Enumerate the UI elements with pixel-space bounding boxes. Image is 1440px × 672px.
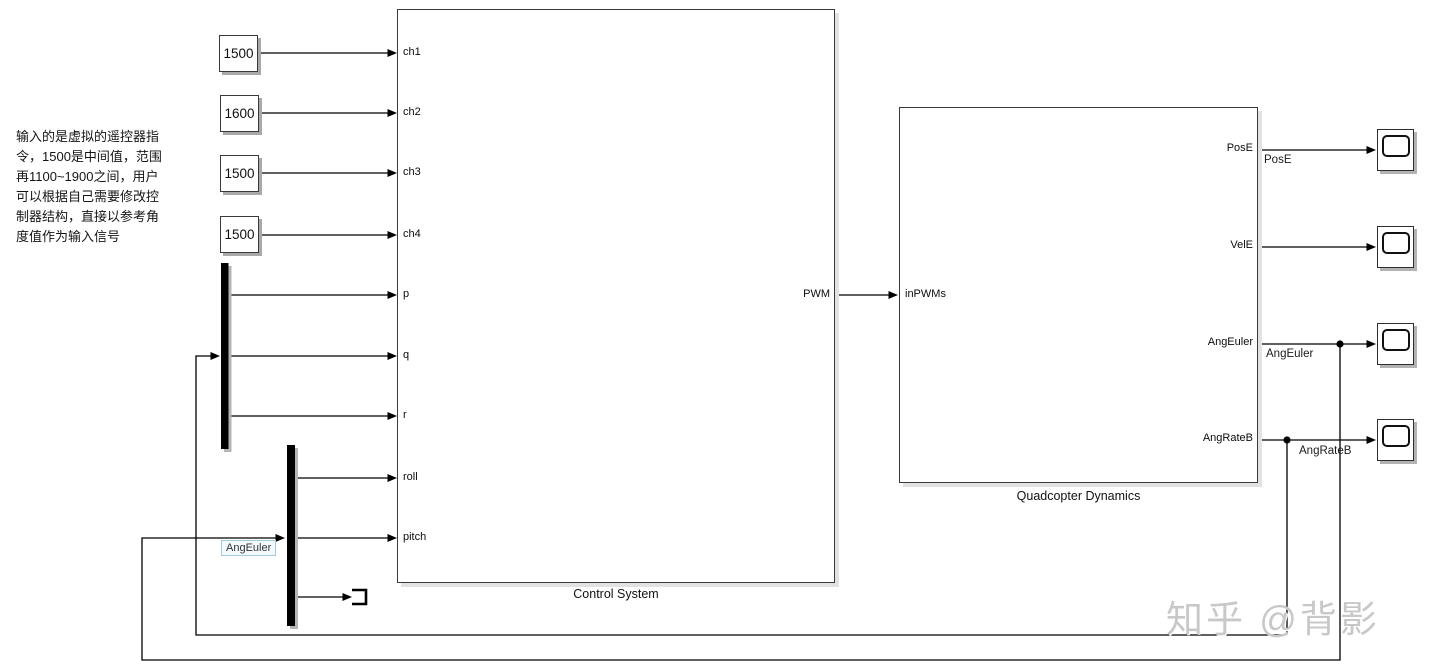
wire-label-angeuler: AngEuler [1266,348,1313,360]
scope-screen-icon [1382,135,1410,157]
scope-screen-icon [1382,232,1410,254]
constant-value: 1500 [224,227,254,242]
scope-screen-icon [1382,425,1410,447]
quadcopter-dynamics-title: Quadcopter Dynamics [899,489,1258,503]
port-roll: roll [403,471,418,484]
constant-block-ch2[interactable]: 1600 [220,95,259,132]
constant-block-ch1[interactable]: 1500 [219,35,258,72]
terminator-block[interactable] [352,590,366,604]
annotation-line: 令，1500是中间值，范围 [16,147,194,167]
control-system-title: Control System [397,587,835,601]
annotation-line: 度值作为输入信号 [16,227,194,247]
annotation-line: 制器结构，直接以参考角 [16,207,194,227]
junction-angeuler [1336,340,1343,347]
port-ch4: ch4 [403,228,421,241]
constant-value: 1500 [223,46,253,61]
annotation-line: 可以根据自己需要修改控 [16,187,194,207]
scope-pose[interactable] [1377,129,1414,171]
scope-angeuler[interactable] [1377,323,1414,365]
port-ch3: ch3 [403,166,421,179]
port-r: r [403,409,407,422]
annotation-line: 输入的是虚拟的遥控器指 [16,127,194,147]
constant-value: 1600 [224,106,254,121]
junction-angrateb [1283,436,1290,443]
constant-block-ch3[interactable]: 1500 [220,155,259,192]
port-angrateb: AngRateB [1158,432,1253,445]
demux2-block[interactable] [287,445,295,626]
port-vele: VelE [1158,239,1253,252]
wire-label-pose: PosE [1264,154,1292,166]
quadcopter-dynamics-block[interactable] [899,107,1258,483]
port-angeuler: AngEuler [1158,336,1253,349]
scope-screen-icon [1382,329,1410,351]
demux1-block[interactable] [221,263,229,449]
scope-vele[interactable] [1377,226,1414,268]
port-ch1: ch1 [403,46,421,59]
port-q: q [403,349,409,362]
port-pwm: PWM [770,288,830,301]
port-inpwms: inPWMs [905,288,946,301]
port-ch2: ch2 [403,106,421,119]
simulink-canvas: 输入的是虚拟的遥控器指 令，1500是中间值，范围 再1100~1900之间，用… [0,0,1440,672]
zhihu-watermark: 知乎 @背影 [1166,589,1380,643]
port-p: p [403,288,409,301]
wire-label-angrateb: AngRateB [1299,445,1351,457]
port-pitch: pitch [403,531,426,544]
port-pose: PosE [1158,142,1253,155]
annotation-line: 再1100~1900之间，用户 [16,167,194,187]
constant-value: 1500 [224,166,254,181]
constant-block-ch4[interactable]: 1500 [220,216,259,253]
scope-angrateb[interactable] [1377,419,1414,461]
annotation-text[interactable]: 输入的是虚拟的遥控器指 令，1500是中间值，范围 再1100~1900之间，用… [16,127,194,247]
signal-tag-angeuler[interactable]: AngEuler [221,540,276,556]
